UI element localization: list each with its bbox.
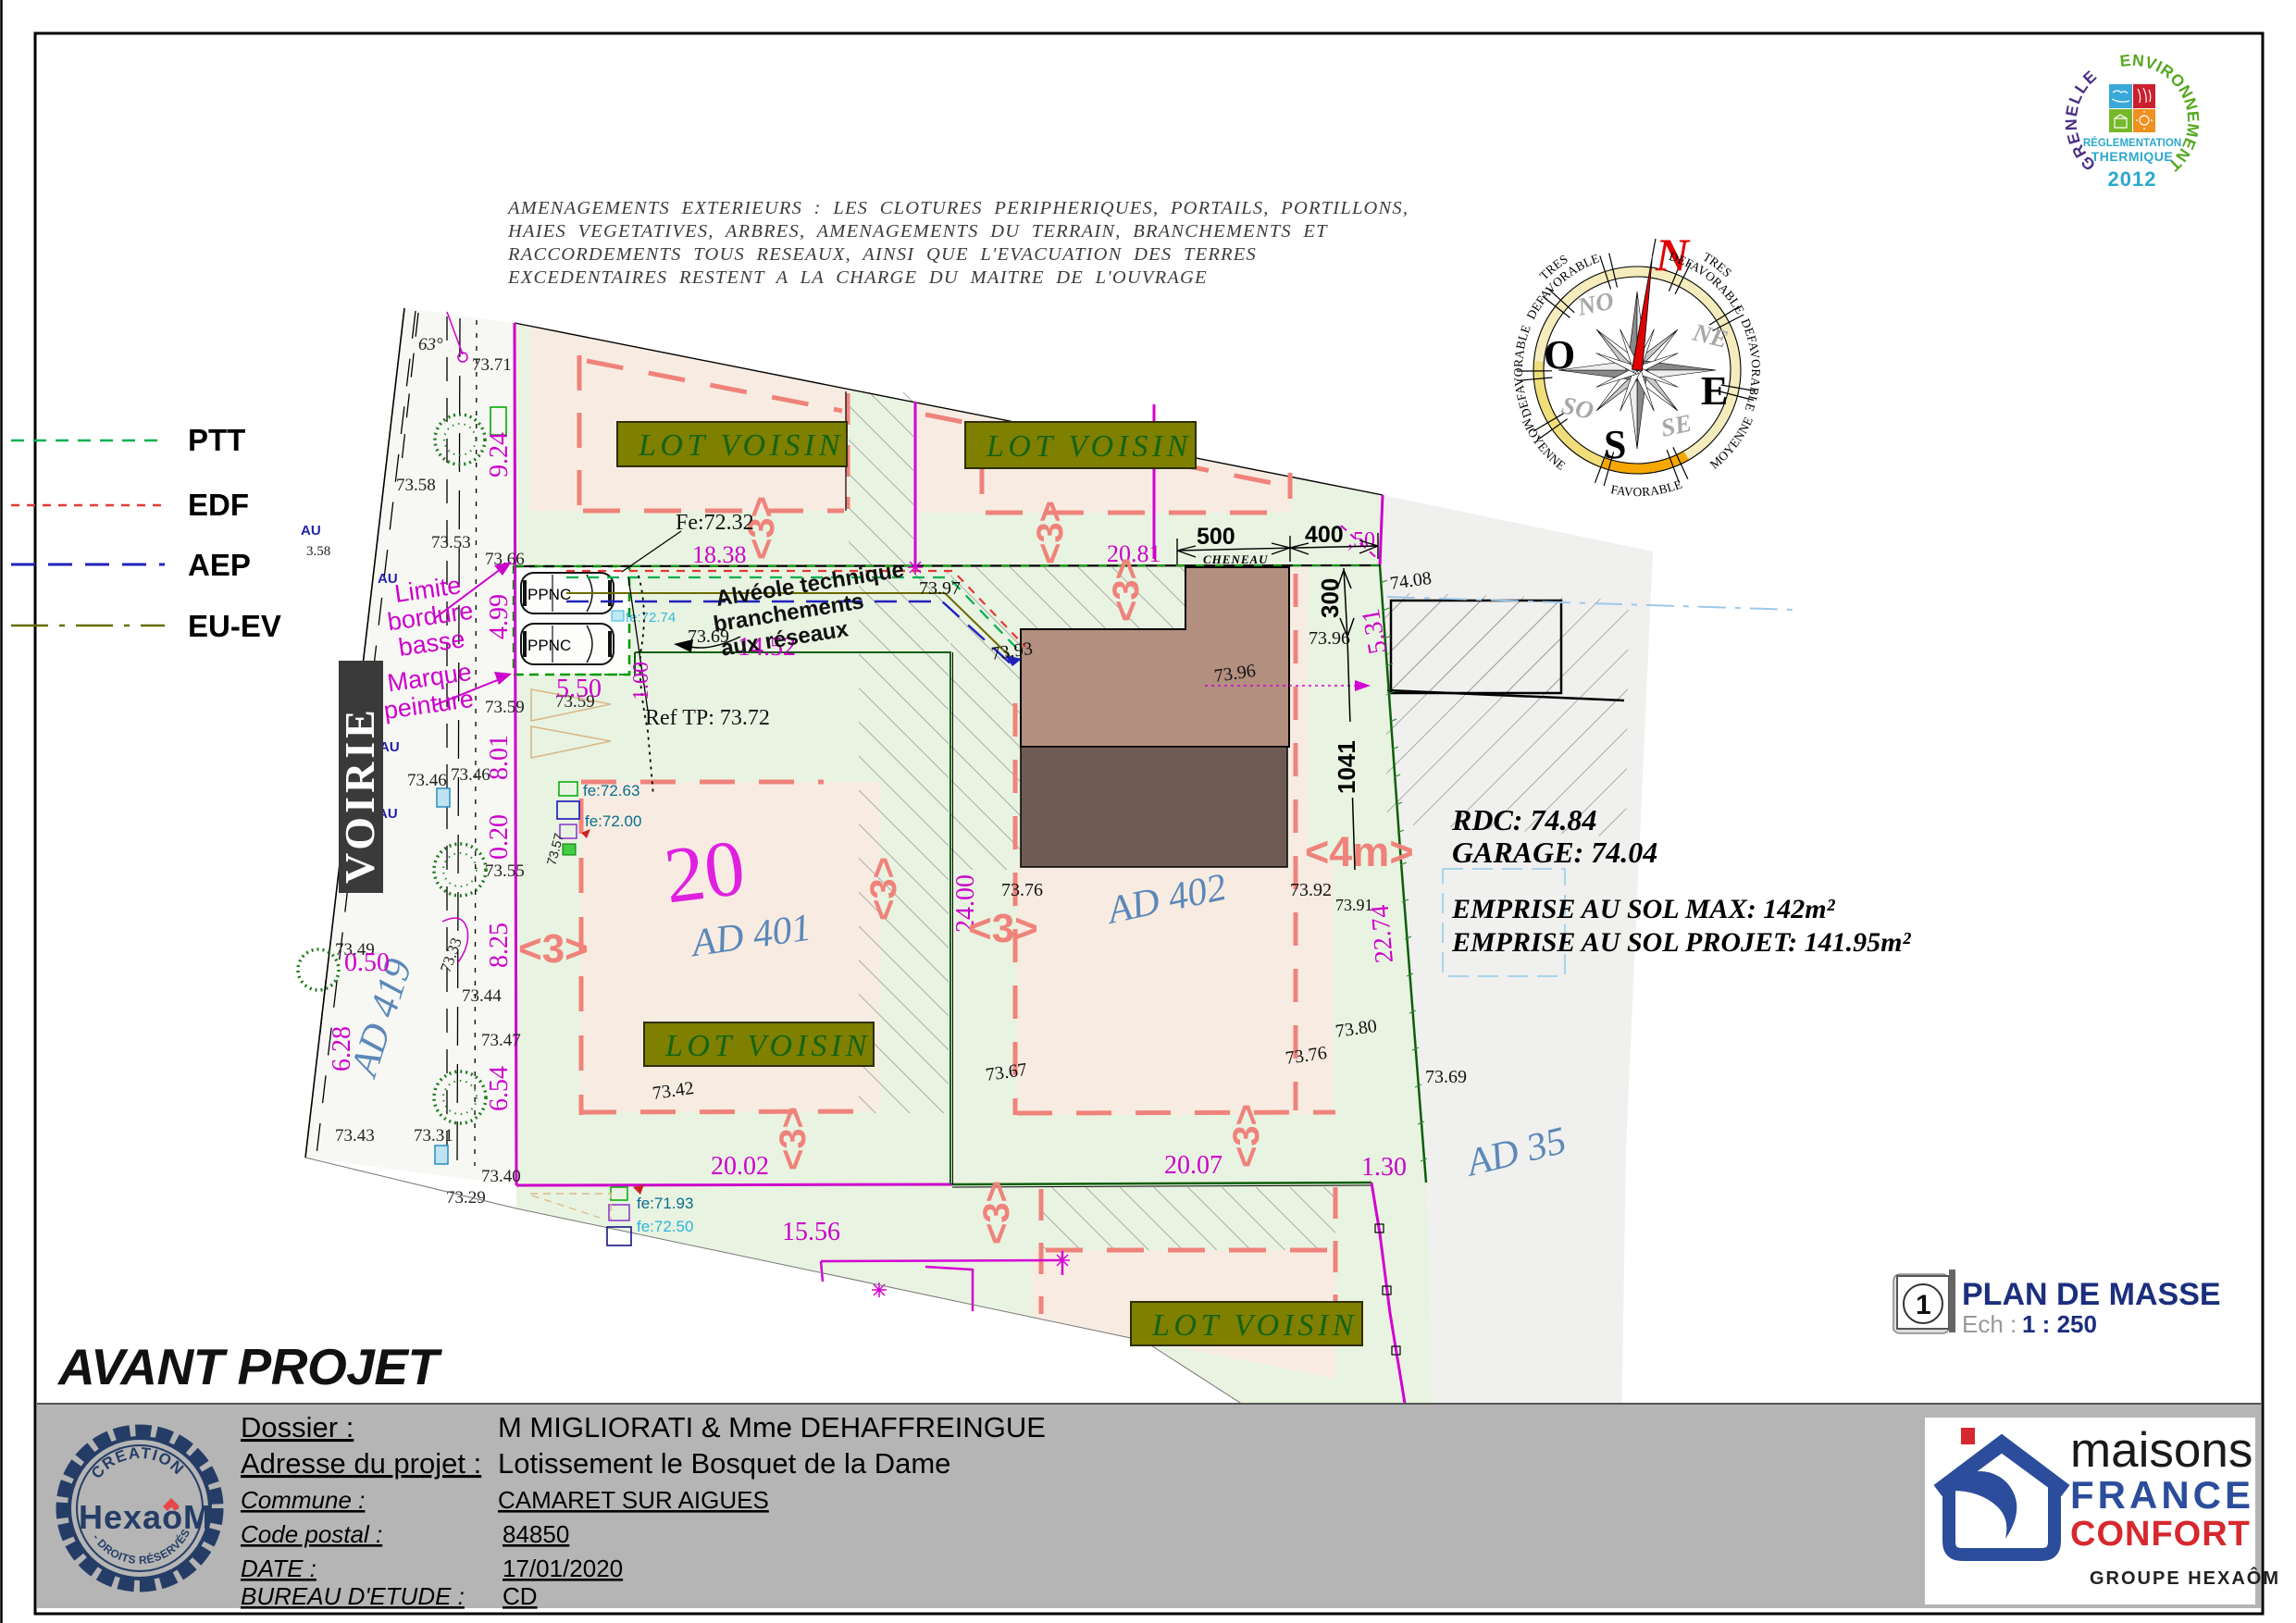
- svg-text:15.56: 15.56: [782, 1218, 840, 1246]
- svg-text:18.38: 18.38: [692, 541, 747, 568]
- svg-text:20: 20: [660, 823, 750, 921]
- svg-text:73.58: 73.58: [396, 476, 436, 495]
- svg-text:73.43: 73.43: [335, 1126, 375, 1146]
- svg-text:1 : 250: 1 : 250: [2022, 1310, 2097, 1338]
- svg-text:73.69: 73.69: [1425, 1067, 1467, 1087]
- svg-text:6.28: 6.28: [328, 1026, 356, 1072]
- svg-text:<3>: <3>: [1226, 1104, 1267, 1168]
- svg-text:EMPRISE AU SOL PROJET: 141.95m: EMPRISE AU SOL PROJET: 141.95m²: [1451, 927, 1911, 958]
- svg-text:20.02: 20.02: [711, 1152, 769, 1181]
- svg-text:EDF: EDF: [188, 488, 249, 522]
- svg-text:5.50: 5.50: [556, 675, 602, 703]
- svg-text:DEFAVORABLE: DEFAVORABLE: [1738, 316, 1763, 414]
- svg-text:73.96: 73.96: [1309, 628, 1350, 649]
- svg-text:AMENAGEMENTS EXTERIEURS : L: AMENAGEMENTS EXTERIEURS : LES CLOTURES P…: [506, 198, 1409, 218]
- svg-text:<3>: <3>: [968, 906, 1038, 951]
- svg-text:fe:71.93: fe:71.93: [637, 1195, 693, 1212]
- svg-text:73.47: 73.47: [481, 1031, 521, 1050]
- svg-text:73.71: 73.71: [472, 355, 512, 375]
- svg-text:8.25: 8.25: [485, 923, 514, 968]
- svg-text:maisons: maisons: [2070, 1423, 2253, 1478]
- svg-text:300: 300: [1316, 578, 1344, 618]
- svg-text:GROUPE HEXAÔM: GROUPE HEXAÔM: [2090, 1567, 2280, 1589]
- svg-text:73.44: 73.44: [462, 986, 502, 1006]
- svg-text:8.01: 8.01: [485, 735, 514, 780]
- svg-text:4.99: 4.99: [485, 594, 514, 639]
- svg-text:73.59: 73.59: [485, 698, 525, 717]
- svg-text:Adresse du projet :: Adresse du projet :: [241, 1447, 481, 1480]
- svg-text:AU: AU: [301, 523, 321, 539]
- svg-text:Ref TP: 73.72: Ref TP: 73.72: [645, 706, 770, 730]
- svg-text:LOT VOISIN: LOT VOISIN: [664, 1029, 871, 1063]
- svg-text:DATE :: DATE :: [241, 1555, 316, 1582]
- svg-text:LOT VOISIN: LOT VOISIN: [638, 428, 844, 463]
- svg-text:PPNC: PPNC: [527, 637, 571, 654]
- svg-text:CONFORT: CONFORT: [2070, 1515, 2251, 1554]
- svg-text:LOT VOISIN: LOT VOISIN: [1151, 1308, 1358, 1343]
- svg-text:73.46: 73.46: [407, 771, 447, 790]
- svg-text:RÉGLEMENTATION: RÉGLEMENTATION: [2083, 137, 2181, 149]
- svg-text:FRANCE: FRANCE: [2070, 1473, 2254, 1517]
- svg-text:GARAGE: 74.04: GARAGE: 74.04: [1452, 836, 1657, 869]
- svg-text:PLAN DE MASSE: PLAN DE MASSE: [1962, 1277, 2221, 1312]
- svg-text:1.30: 1.30: [1361, 1153, 1407, 1182]
- svg-text:BUREAU D'ETUDE :: BUREAU D'ETUDE :: [241, 1582, 465, 1610]
- svg-text:Commune :: Commune :: [241, 1486, 365, 1514]
- svg-text:73.31: 73.31: [414, 1126, 453, 1146]
- svg-text:fe:72.50: fe:72.50: [637, 1218, 693, 1235]
- svg-text:0.20: 0.20: [485, 814, 514, 860]
- svg-text:CD: CD: [503, 1582, 538, 1610]
- svg-text:- DROITS RÉSERVÉS -: - DROITS RÉSERVÉS -: [0, 0, 194, 1567]
- svg-text:PPNC: PPNC: [527, 586, 571, 603]
- svg-text:73.91: 73.91: [1335, 896, 1373, 914]
- svg-text:<3>: <3>: [773, 1107, 813, 1171]
- svg-text:LOT VOISIN: LOT VOISIN: [986, 429, 1192, 464]
- svg-text:2012: 2012: [2108, 167, 2157, 191]
- svg-text:AEP: AEP: [188, 548, 251, 582]
- svg-text:63°: 63°: [418, 335, 443, 354]
- svg-text:Fe:72.32: Fe:72.32: [676, 511, 754, 535]
- svg-text:AVANT PROJET: AVANT PROJET: [56, 1338, 443, 1395]
- svg-text:THERMIQUE: THERMIQUE: [2091, 149, 2174, 164]
- svg-text:O: O: [1544, 332, 1575, 378]
- svg-text:HAIES VEGETATIVES, ARBRES,: HAIES VEGETATIVES, ARBRES, AMENAGEMENTS …: [507, 221, 1328, 242]
- svg-text:73.53: 73.53: [431, 533, 471, 552]
- svg-text:400: 400: [1305, 522, 1344, 548]
- svg-text:Code postal :: Code postal :: [241, 1520, 382, 1548]
- svg-text:FAVORABLE: FAVORABLE: [1609, 477, 1683, 499]
- svg-text:Lotissement le Bosquet de la D: Lotissement le Bosquet de la Dame: [498, 1447, 950, 1480]
- svg-text:1.00: 1.00: [629, 662, 653, 700]
- svg-text:Dossier :: Dossier :: [241, 1411, 354, 1443]
- svg-text:20.07: 20.07: [1164, 1151, 1222, 1180]
- svg-text:1041: 1041: [1333, 740, 1360, 794]
- svg-text:73.29: 73.29: [446, 1188, 486, 1208]
- svg-text:EU-EV: EU-EV: [188, 609, 281, 643]
- svg-text:E: E: [1701, 368, 1728, 414]
- svg-text:3.58: 3.58: [306, 544, 330, 559]
- svg-text:73.97: 73.97: [919, 578, 961, 599]
- svg-text:SO: SO: [1559, 391, 1596, 426]
- svg-text:M MIGLIORATI & Mme DEHAFFREING: M MIGLIORATI & Mme DEHAFFREINGUE: [498, 1411, 1046, 1443]
- svg-text:73.40: 73.40: [481, 1167, 521, 1186]
- svg-text:fe:72.63: fe:72.63: [583, 782, 639, 799]
- svg-text:1: 1: [1916, 1290, 1931, 1320]
- svg-text:VOIRIE: VOIRIE: [336, 706, 383, 884]
- svg-text:S: S: [1604, 422, 1626, 467]
- svg-text:CAMARET SUR AIGUES: CAMARET SUR AIGUES: [498, 1486, 769, 1514]
- svg-text:<3>: <3>: [518, 926, 589, 972]
- svg-text:EXCEDENTAIRES RESTENT A LA: EXCEDENTAIRES RESTENT A LA CHARGE DU MAI…: [507, 267, 1208, 288]
- svg-text:73.76: 73.76: [1001, 880, 1043, 900]
- svg-text:CHENEAU: CHENEAU: [1203, 552, 1269, 566]
- svg-text:17/01/2020: 17/01/2020: [503, 1555, 623, 1582]
- svg-text:Ech :: Ech :: [1962, 1310, 2023, 1338]
- svg-text:<3>: <3>: [976, 1181, 1017, 1245]
- svg-text:<3>: <3>: [1030, 501, 1071, 564]
- svg-text:PTT: PTT: [188, 423, 245, 457]
- svg-text:6.54: 6.54: [485, 1066, 514, 1111]
- svg-text:EMPRISE AU SOL MAX: 142m²: EMPRISE AU SOL MAX: 142m²: [1451, 894, 1836, 924]
- svg-text:0.50: 0.50: [344, 948, 390, 977]
- svg-text:500: 500: [1197, 524, 1235, 550]
- svg-text:73.92: 73.92: [1290, 880, 1332, 900]
- svg-text:73.55: 73.55: [485, 861, 525, 881]
- svg-text:RDC: 74.84: RDC: 74.84: [1451, 803, 1596, 836]
- svg-text:<4m>: <4m>: [1305, 828, 1414, 875]
- svg-text:<3>: <3>: [863, 857, 904, 921]
- svg-text:RACCORDEMENTS TOUS RESEAUX,: RACCORDEMENTS TOUS RESEAUX, AINSI QUE L'…: [507, 244, 1257, 265]
- svg-text:HexaôM: HexaôM: [79, 1498, 212, 1536]
- svg-text:9.24: 9.24: [485, 432, 514, 477]
- svg-text:SE: SE: [1658, 409, 1694, 442]
- svg-text:<3>: <3>: [1106, 558, 1147, 622]
- svg-text:fe:72.00: fe:72.00: [585, 812, 641, 830]
- svg-text:84850: 84850: [503, 1520, 569, 1548]
